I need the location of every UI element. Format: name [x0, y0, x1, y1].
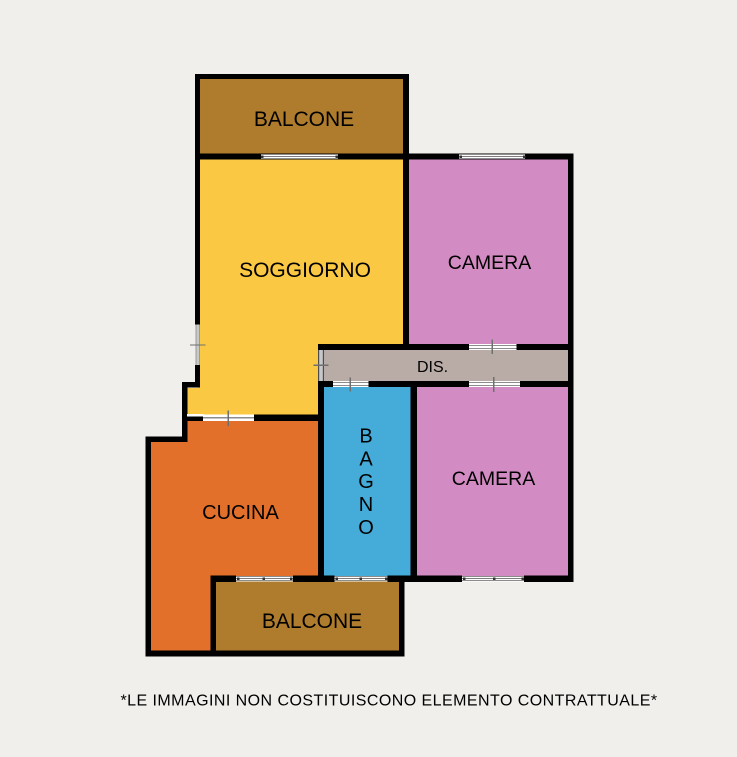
svg-text:A: A [359, 449, 373, 471]
svg-text:DIS.: DIS. [417, 359, 448, 376]
svg-text:N: N [359, 494, 373, 516]
svg-text:CAMERA: CAMERA [448, 252, 531, 274]
svg-text:B: B [359, 426, 372, 448]
svg-text:BALCONE: BALCONE [254, 108, 354, 131]
svg-text:CAMERA: CAMERA [452, 468, 535, 490]
svg-text:O: O [358, 517, 374, 539]
svg-text:BALCONE: BALCONE [262, 610, 362, 633]
svg-text:CUCINA: CUCINA [202, 502, 279, 524]
svg-text:G: G [358, 471, 374, 493]
svg-text:*LE IMMAGINI NON COSTITUISCONO: *LE IMMAGINI NON COSTITUISCONO ELEMENTO … [120, 693, 657, 710]
svg-text:SOGGIORNO: SOGGIORNO [239, 259, 371, 282]
